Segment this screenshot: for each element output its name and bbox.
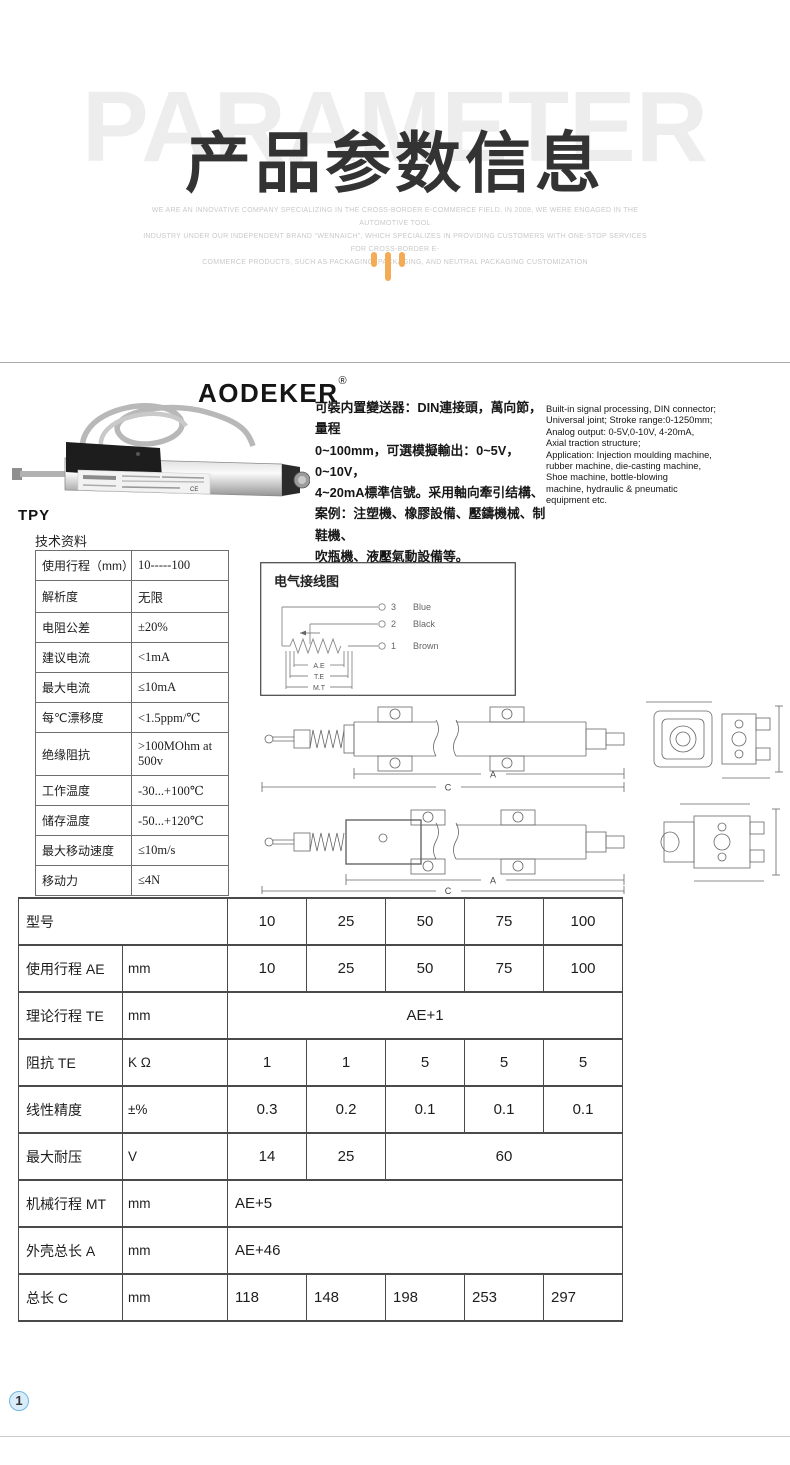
bottom-divider [0,1436,790,1437]
product-description-en: Built-in signal processing, DIN connecto… [546,404,751,507]
drawing-end-view-1 [646,702,783,778]
table-row-impedance: 阻抗 TE K Ω 1 1 5 5 5 [19,1039,623,1086]
table-row-housing-length-a: 外壳总长 A mm AE+46 [19,1227,623,1274]
dim-te-label: T.E [314,674,324,681]
dim-mt-label: M.T [313,685,326,692]
product-parameter-page: PARAMETER 产品参数信息 WE ARE AN INNOVATIVE CO… [0,0,790,1465]
registered-trademark-icon: ® [339,375,349,387]
dim-c-label-2: C [445,886,452,894]
dim-a-label-2: A [490,876,496,886]
terminal-1-color: Brown [413,641,439,651]
table-row-stroke-ae: 使用行程 AE mm 10 25 50 75 100 [19,945,623,992]
wiring-diagram: 电气接线图 3 Blue 2 Black 1 [260,562,516,696]
ce-mark: CE [190,487,198,493]
product-description-zh: 可裝内置變送器：DIN連接頭，萬向節，量程 0~100mm，可選模擬輸出：0~5… [315,397,551,567]
terminal-1-num: 1 [391,641,396,651]
table-row-mechanical-mt: 机械行程 MT mm AE+5 [19,1180,623,1227]
page-number-badge: 1 [9,1391,29,1411]
model-label: TPY [18,507,50,524]
technical-spec-table: 使用行程（mm）10-----100 解析度无限 电阻公差±20% 建议电流<1… [35,550,229,896]
terminal-3-color: Blue [413,602,431,612]
section-divider [0,362,790,363]
table-row: 最大移动速度≤10m/s [36,836,229,866]
terminal-2-color: Black [413,619,436,629]
table-row: 每℃漂移度<1.5ppm/℃ [36,703,229,733]
page-title: 产品参数信息 [0,110,790,206]
drawing-end-view-2 [661,804,780,881]
terminal-2-num: 2 [391,619,396,629]
table-row: 移动力≤4N [36,866,229,896]
technical-drawings: A C A C [256,694,790,894]
dim-c-label-1: C [445,783,452,793]
dim-ae-label: A.E [313,663,325,670]
sensor-rod [20,471,68,477]
terminal-3-num: 3 [391,602,396,612]
table-row-linearity: 线性精度 ±% 0.3 0.2 0.1 0.1 0.1 [19,1086,623,1133]
table-row: 使用行程（mm）10-----100 [36,551,229,581]
wiring-title: 电气接线图 [274,574,339,589]
table-row: 电阻公差±20% [36,613,229,643]
table-row: 工作温度-30...+100℃ [36,776,229,806]
table-row-max-voltage: 最大耐压 V 14 25 60 [19,1133,623,1180]
dim-a-label-1: A [490,770,496,780]
table-row-theoretical-te: 理论行程 TE mm AE+1 [19,992,623,1039]
table-row: 绝缘阻抗>100MOhm at 500v [36,733,229,776]
product-photo: CE [10,390,310,515]
table-row: 解析度无限 [36,581,229,613]
table-row: 最大电流≤10mA [36,673,229,703]
table-row-total-length-c: 总长 C mm 118 148 198 253 297 [19,1274,623,1321]
parameter-table: 型号 10 25 50 75 100 使用行程 AE mm 10 25 50 7… [18,897,623,1322]
drawing-side-view-2 [262,810,624,894]
table-row: 建议电流<1mA [36,643,229,673]
orange-bars-icon [370,252,410,284]
table-row: 储存温度-50...+120℃ [36,806,229,836]
spec-table-title: 技术资料 [35,531,87,550]
drawing-side-view-1 [262,707,624,792]
table-row-model: 型号 10 25 50 75 100 [19,898,623,945]
